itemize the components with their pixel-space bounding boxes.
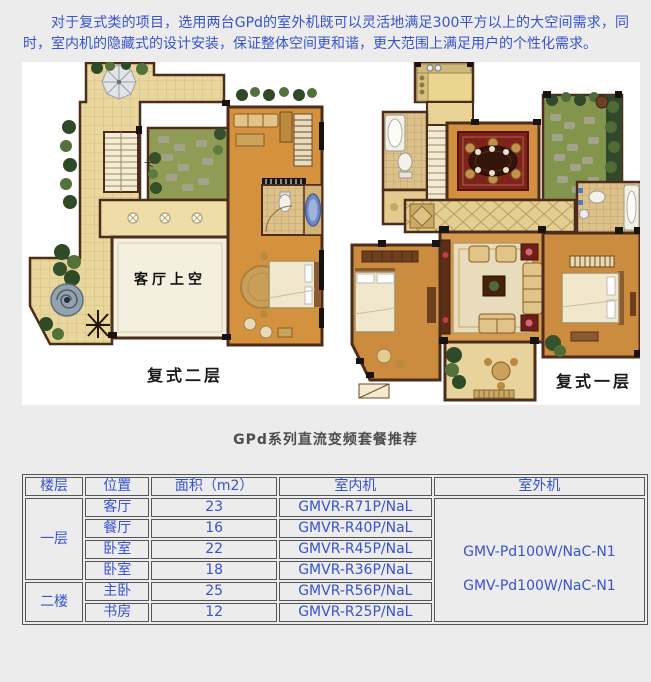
cell-area: 18 bbox=[151, 561, 276, 580]
cell-outdoor-unit: GMV-Pd100W/NaC-N1 GMV-Pd100W/NaC-N1 bbox=[434, 498, 645, 622]
cell-indoor-unit: GMVR-R71P/NaL bbox=[279, 498, 432, 517]
col-header-floor: 楼层 bbox=[25, 477, 83, 496]
cell-area: 16 bbox=[151, 519, 276, 538]
cell-floor: 二楼 bbox=[25, 582, 83, 622]
package-table: 楼层 位置 面积（m2） 室内机 室外机 一层 客厅 23 GMVR-R71P/… bbox=[22, 474, 648, 625]
cell-location: 卧室 bbox=[85, 561, 149, 580]
col-header-outdoor-unit: 室外机 bbox=[434, 477, 645, 496]
table-row: 一层 客厅 23 GMVR-R71P/NaL GMV-Pd100W/NaC-N1… bbox=[25, 498, 645, 517]
table-header-row: 楼层 位置 面积（m2） 室内机 室外机 bbox=[25, 477, 645, 496]
stair-down-label: 下 bbox=[144, 162, 154, 173]
cell-indoor-unit: GMVR-R45P/NaL bbox=[279, 540, 432, 559]
cell-area: 12 bbox=[151, 603, 276, 622]
cell-area: 23 bbox=[151, 498, 276, 517]
section-title: GPd系列直流变频套餐推荐 bbox=[0, 429, 651, 449]
cell-location: 书房 bbox=[85, 603, 149, 622]
col-header-indoor-unit: 室内机 bbox=[279, 477, 432, 496]
void-label: 客厅上空 bbox=[133, 271, 206, 288]
cell-area: 22 bbox=[151, 540, 276, 559]
outdoor-unit-model: GMV-Pd100W/NaC-N1 bbox=[463, 578, 616, 595]
cell-location: 客厅 bbox=[85, 498, 149, 517]
cell-indoor-unit: GMVR-R40P/NaL bbox=[279, 519, 432, 538]
cell-location: 餐厅 bbox=[85, 519, 149, 538]
cell-indoor-unit: GMVR-R36P/NaL bbox=[279, 561, 432, 580]
intro-paragraph: 对于复式类的项目，选用两台GPd的室外机既可以灵活地满足300平方以上的大空间需… bbox=[23, 13, 629, 55]
col-header-area: 面积（m2） bbox=[151, 477, 276, 496]
cell-location: 主卧 bbox=[85, 582, 149, 601]
floor-plans-svg: 下 客厅上空 bbox=[22, 62, 640, 405]
cell-indoor-unit: GMVR-R25P/NaL bbox=[279, 603, 432, 622]
floorplan-upper-caption: 复式二层 bbox=[146, 366, 223, 385]
floorplan-upper: 下 客厅上空 bbox=[30, 62, 324, 385]
cell-area: 25 bbox=[151, 582, 276, 601]
outdoor-unit-model: GMV-Pd100W/NaC-N1 bbox=[463, 544, 616, 561]
cell-location: 卧室 bbox=[85, 540, 149, 559]
cell-indoor-unit: GMVR-R56P/NaL bbox=[279, 582, 432, 601]
col-header-location: 位置 bbox=[85, 477, 149, 496]
floorplan-lower-caption: 复式一层 bbox=[555, 372, 632, 391]
floorplan-lower: 复式一层 bbox=[352, 62, 640, 400]
cell-floor: 一层 bbox=[25, 498, 83, 580]
floor-plans-image: 下 客厅上空 bbox=[22, 62, 640, 405]
